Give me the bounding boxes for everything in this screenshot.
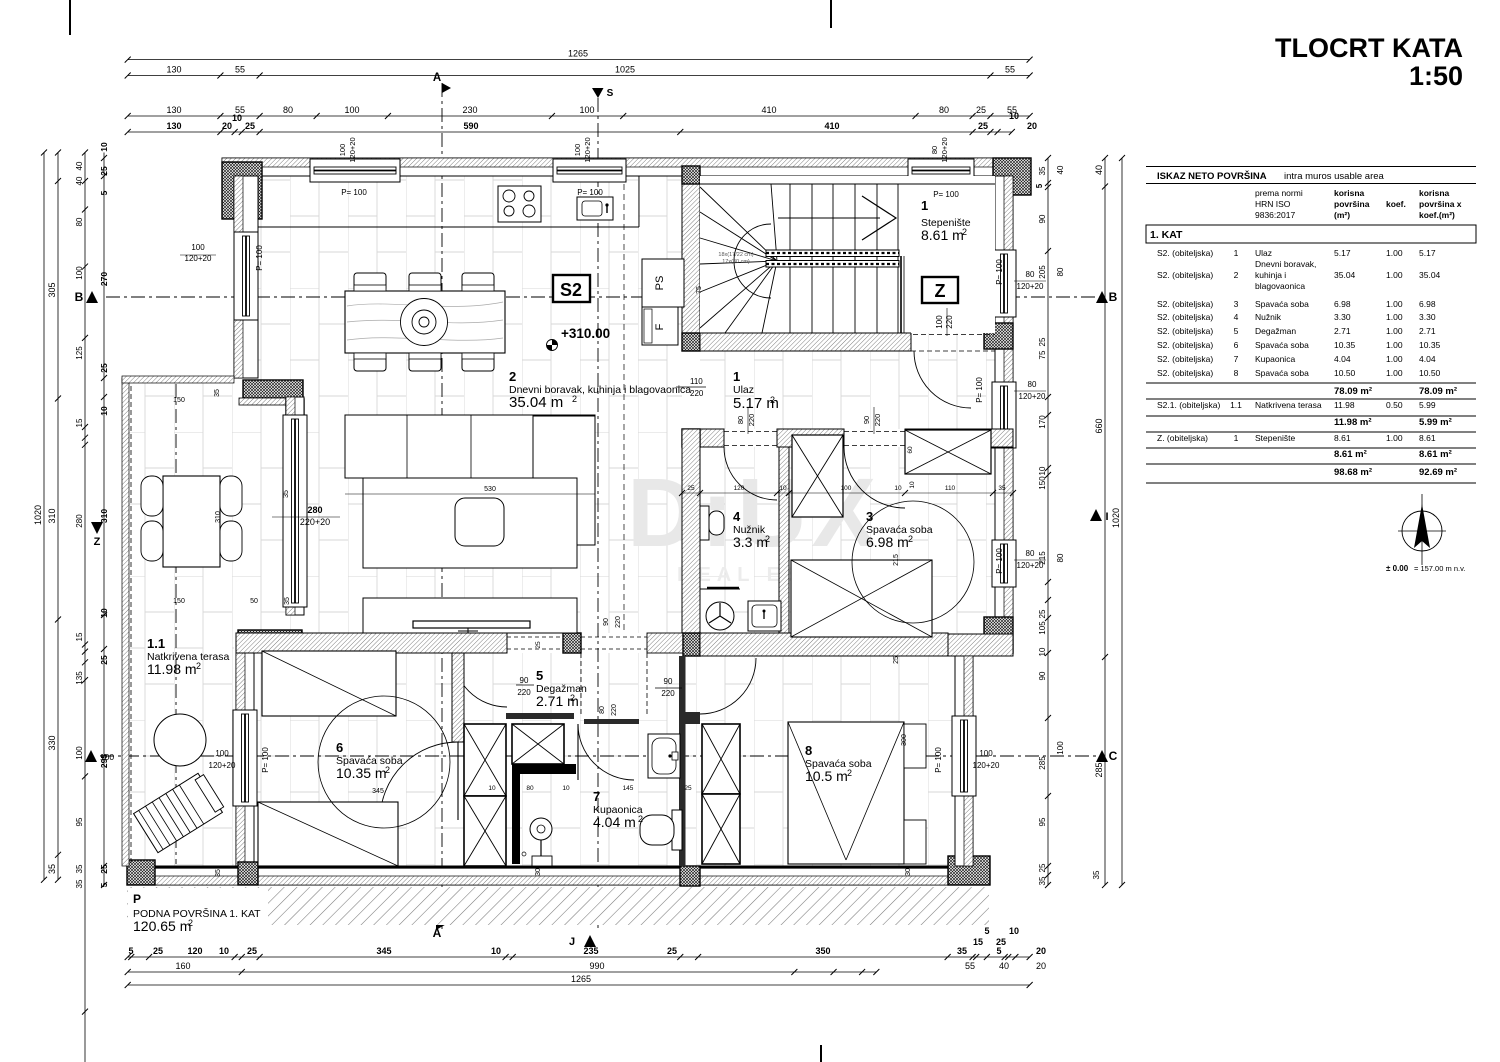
svg-text:15: 15: [75, 632, 84, 641]
svg-text:25: 25: [1038, 863, 1047, 872]
svg-text:35: 35: [214, 389, 221, 397]
svg-text:Spavaća soba: Spavaća soba: [1255, 368, 1309, 378]
svg-text:80: 80: [526, 785, 534, 792]
svg-text:410: 410: [824, 121, 839, 131]
svg-text:10.50: 10.50: [1334, 368, 1356, 378]
svg-text:1: 1: [733, 369, 740, 384]
svg-text:10: 10: [562, 785, 570, 792]
svg-text:135: 135: [75, 671, 84, 685]
svg-text:220: 220: [615, 616, 622, 628]
svg-text:100: 100: [979, 749, 993, 758]
svg-text:P= 100: P= 100: [975, 377, 984, 403]
svg-text:1.00: 1.00: [1386, 340, 1403, 350]
svg-text:25: 25: [99, 166, 109, 176]
svg-text:95: 95: [1038, 817, 1047, 826]
svg-text:130: 130: [166, 105, 181, 115]
svg-text:1: 1: [921, 198, 928, 213]
svg-text:230: 230: [462, 105, 477, 115]
svg-text:100: 100: [579, 105, 594, 115]
svg-text:7: 7: [593, 789, 600, 804]
svg-text:285: 285: [1094, 762, 1104, 777]
svg-text:78.09 m²: 78.09 m²: [1334, 386, 1372, 397]
svg-text:120+20: 120+20: [940, 137, 949, 162]
svg-text:1.00: 1.00: [1386, 368, 1403, 378]
svg-text:10: 10: [219, 946, 229, 956]
svg-text:80: 80: [1056, 267, 1065, 276]
svg-text:90: 90: [1038, 671, 1047, 680]
svg-text:35: 35: [998, 485, 1006, 492]
svg-text:125: 125: [75, 346, 84, 360]
svg-text:P= 100: P= 100: [261, 747, 270, 773]
svg-text:25: 25: [667, 946, 677, 956]
svg-text:5: 5: [128, 946, 133, 956]
svg-text:100: 100: [75, 266, 84, 280]
svg-text:110: 110: [945, 485, 956, 492]
svg-text:C: C: [1109, 749, 1118, 763]
svg-text:PS: PS: [654, 276, 666, 291]
svg-text:345: 345: [372, 788, 384, 795]
svg-text:10.35: 10.35: [1419, 340, 1441, 350]
svg-text:1.1: 1.1: [147, 636, 165, 651]
svg-text:površina x: površina x: [1419, 199, 1462, 209]
svg-text:25: 25: [1038, 337, 1047, 346]
svg-text:35: 35: [284, 597, 291, 605]
svg-text:4.04 m: 4.04 m: [593, 814, 636, 830]
svg-text:25: 25: [535, 641, 542, 649]
svg-text:80: 80: [283, 105, 293, 115]
svg-text:80: 80: [1026, 549, 1035, 558]
svg-text:8.61: 8.61: [1334, 433, 1351, 443]
svg-text:590: 590: [463, 121, 478, 131]
svg-text:220: 220: [517, 688, 531, 697]
svg-text:2: 2: [908, 534, 913, 544]
svg-text:2: 2: [638, 814, 643, 824]
svg-text:350: 350: [815, 946, 830, 956]
svg-text:P: P: [133, 892, 141, 906]
svg-text:Spavaća soba: Spavaća soba: [1255, 340, 1309, 350]
svg-text:120+20: 120+20: [583, 137, 592, 162]
svg-text:10: 10: [1038, 647, 1047, 656]
svg-text:30: 30: [905, 868, 912, 876]
svg-text:40: 40: [999, 961, 1009, 971]
svg-text:80: 80: [1028, 380, 1037, 389]
svg-text:1. KAT: 1. KAT: [1150, 229, 1183, 241]
svg-text:10: 10: [99, 406, 109, 416]
svg-text:280: 280: [307, 505, 322, 515]
svg-text:40: 40: [1094, 165, 1104, 175]
svg-text:98.68 m²: 98.68 m²: [1334, 467, 1372, 478]
svg-text:100: 100: [1056, 741, 1065, 755]
svg-text:4.04: 4.04: [1334, 354, 1351, 364]
svg-text:11.98 m: 11.98 m: [147, 661, 197, 677]
svg-text:2: 2: [572, 394, 577, 404]
svg-text:660: 660: [1094, 418, 1104, 433]
svg-text:120: 120: [187, 946, 202, 956]
svg-text:220: 220: [661, 689, 675, 698]
svg-text:F: F: [654, 323, 666, 330]
svg-text:10: 10: [1038, 466, 1047, 475]
svg-text:100: 100: [75, 746, 84, 760]
svg-text:80: 80: [930, 146, 939, 154]
svg-text:120: 120: [734, 485, 745, 492]
svg-text:8: 8: [805, 743, 812, 758]
svg-text:285: 285: [1038, 756, 1047, 770]
svg-text:1.00: 1.00: [1386, 312, 1403, 322]
svg-text:A: A: [433, 926, 442, 940]
svg-text:kuhinja i: kuhinja i: [1255, 270, 1286, 280]
svg-text:25: 25: [996, 937, 1006, 947]
svg-text:3.30: 3.30: [1419, 312, 1436, 322]
svg-text:120.65 m: 120.65 m: [133, 918, 191, 934]
svg-text:10: 10: [232, 113, 242, 123]
svg-text:105: 105: [1038, 621, 1047, 635]
svg-text:S2.1. (obiteljska): S2.1. (obiteljska): [1157, 400, 1220, 410]
svg-text:2.71: 2.71: [1419, 326, 1436, 336]
svg-text:P= 100: P= 100: [995, 259, 1004, 285]
svg-text:P= 100: P= 100: [341, 188, 367, 197]
svg-text:10: 10: [1009, 111, 1019, 121]
svg-text:P= 100: P= 100: [255, 245, 264, 271]
svg-text:345: 345: [376, 946, 391, 956]
svg-text:3: 3: [866, 509, 873, 524]
svg-text:S2. (obiteljska): S2. (obiteljska): [1157, 299, 1213, 309]
svg-text:170: 170: [1038, 415, 1047, 429]
svg-text:295: 295: [99, 754, 109, 768]
svg-text:270: 270: [99, 272, 109, 286]
svg-text:25: 25: [978, 121, 988, 131]
svg-text:S2. (obiteljska): S2. (obiteljska): [1157, 354, 1213, 364]
svg-text:HRN ISO: HRN ISO: [1255, 199, 1291, 209]
svg-text:10: 10: [491, 946, 501, 956]
svg-text:120+20: 120+20: [209, 761, 236, 770]
svg-text:2: 2: [770, 395, 775, 405]
svg-text:(m²): (m²): [1334, 210, 1350, 220]
svg-text:150: 150: [173, 598, 185, 605]
svg-text:J: J: [569, 936, 575, 948]
svg-text:S2. (obiteljska): S2. (obiteljska): [1157, 248, 1213, 258]
svg-text:Z: Z: [94, 536, 101, 548]
svg-text:90: 90: [664, 677, 673, 686]
svg-text:78.09 m²: 78.09 m²: [1419, 386, 1457, 397]
svg-text:100: 100: [191, 243, 205, 252]
svg-text:Stepenište: Stepenište: [1255, 433, 1295, 443]
svg-text:B: B: [1109, 290, 1118, 304]
svg-text:120+20: 120+20: [1019, 392, 1046, 401]
svg-text:10: 10: [779, 485, 787, 492]
svg-text:90: 90: [603, 618, 610, 626]
svg-text:I: I: [1105, 511, 1108, 523]
svg-text:2: 2: [847, 768, 852, 778]
svg-text:35: 35: [957, 946, 967, 956]
svg-text:10: 10: [909, 481, 916, 489]
svg-text:Dnevni boravak,: Dnevni boravak,: [1255, 259, 1316, 269]
svg-text:1020: 1020: [33, 505, 43, 525]
svg-text:40: 40: [75, 161, 84, 170]
svg-text:55: 55: [1005, 65, 1015, 75]
svg-text:145: 145: [623, 785, 634, 792]
svg-text:25: 25: [245, 121, 255, 131]
svg-text:10: 10: [894, 485, 902, 492]
svg-text:25: 25: [684, 785, 692, 792]
svg-text:1: 1: [1234, 433, 1239, 443]
svg-text:35: 35: [215, 869, 222, 877]
svg-text:1025: 1025: [615, 65, 635, 75]
svg-text:100: 100: [338, 144, 347, 157]
svg-text:35.04: 35.04: [1334, 270, 1356, 280]
svg-text:1.00: 1.00: [1386, 248, 1403, 258]
svg-text:2: 2: [570, 693, 575, 703]
svg-text:= 157.00 m n.v.: = 157.00 m n.v.: [1414, 564, 1465, 573]
svg-text:Degažman: Degažman: [1255, 326, 1296, 336]
svg-text:5.99 m²: 5.99 m²: [1419, 417, 1452, 428]
svg-text:1: 1: [1234, 248, 1239, 258]
svg-text:130: 130: [166, 65, 181, 75]
svg-text:10: 10: [99, 608, 109, 618]
svg-text:2: 2: [1234, 270, 1239, 280]
svg-text:80: 80: [1026, 270, 1035, 279]
svg-text:P= 100: P= 100: [577, 188, 603, 197]
svg-text:8.61 m²: 8.61 m²: [1419, 449, 1452, 460]
svg-text:blagovaonica: blagovaonica: [1255, 281, 1305, 291]
svg-text:60: 60: [907, 446, 914, 454]
svg-text:25: 25: [687, 485, 695, 492]
svg-text:8: 8: [1234, 368, 1239, 378]
svg-text:1020: 1020: [1111, 508, 1121, 528]
svg-text:5: 5: [1234, 326, 1239, 336]
svg-text:11.98 m²: 11.98 m²: [1334, 417, 1372, 428]
svg-text:305: 305: [47, 282, 57, 297]
svg-text:P= 100: P= 100: [934, 747, 943, 773]
svg-text:160: 160: [175, 961, 190, 971]
svg-text:120+20: 120+20: [973, 761, 1000, 770]
svg-text:40: 40: [75, 176, 84, 185]
svg-text:Ulaz: Ulaz: [1255, 248, 1272, 258]
svg-text:korisna: korisna: [1334, 188, 1365, 198]
svg-text:100: 100: [215, 749, 229, 758]
svg-text:92.69 m²: 92.69 m²: [1419, 467, 1457, 478]
svg-text:530: 530: [484, 486, 496, 493]
svg-text:150: 150: [173, 397, 185, 404]
svg-text:35: 35: [75, 864, 84, 873]
svg-text:1.00: 1.00: [1386, 299, 1403, 309]
svg-text:S2: S2: [560, 280, 582, 300]
svg-text:310: 310: [99, 509, 109, 523]
svg-text:koef.: koef.: [1386, 199, 1406, 209]
svg-text:280: 280: [75, 514, 84, 528]
svg-text:3.3 m: 3.3 m: [733, 534, 768, 550]
svg-text:7: 7: [1234, 354, 1239, 364]
svg-text:300: 300: [901, 734, 908, 746]
svg-text:100: 100: [841, 485, 852, 492]
svg-text:11.98: 11.98: [1334, 400, 1355, 410]
svg-text:5: 5: [996, 946, 1001, 956]
svg-text:25: 25: [99, 655, 109, 665]
svg-text:90: 90: [1038, 214, 1047, 223]
svg-text:2: 2: [509, 369, 516, 384]
svg-text:Z: Z: [935, 281, 946, 301]
svg-text:prema normi: prema normi: [1255, 188, 1303, 198]
svg-text:20: 20: [1036, 946, 1046, 956]
svg-text:S2. (obiteljska): S2. (obiteljska): [1157, 368, 1213, 378]
svg-text:100: 100: [344, 105, 359, 115]
svg-text:korisna: korisna: [1419, 188, 1450, 198]
svg-text:5.99: 5.99: [1419, 400, 1436, 410]
svg-text:5.17: 5.17: [1334, 248, 1351, 258]
svg-text:5: 5: [984, 926, 989, 936]
svg-text:40: 40: [1056, 165, 1065, 174]
svg-text:S: S: [607, 88, 614, 99]
svg-text:310: 310: [215, 511, 222, 523]
svg-text:90: 90: [862, 416, 871, 424]
svg-text:6: 6: [336, 740, 343, 755]
svg-text:35: 35: [1038, 876, 1047, 885]
svg-text:120+20: 120+20: [185, 254, 212, 263]
svg-text:90: 90: [520, 676, 529, 685]
svg-text:Kupaonica: Kupaonica: [1255, 354, 1295, 364]
svg-text:10: 10: [99, 142, 109, 152]
svg-text:3: 3: [1234, 299, 1239, 309]
svg-text:25: 25: [247, 946, 257, 956]
svg-text:9836:2017: 9836:2017: [1255, 210, 1295, 220]
svg-text:2.71: 2.71: [1334, 326, 1351, 336]
svg-text:410: 410: [761, 105, 776, 115]
svg-text:3.30: 3.30: [1334, 312, 1351, 322]
svg-text:10.35: 10.35: [1334, 340, 1356, 350]
svg-text:35: 35: [1092, 870, 1101, 879]
svg-text:17x(30 cm): 17x(30 cm): [722, 259, 750, 265]
svg-text:990: 990: [589, 961, 604, 971]
svg-text:Nužnik: Nužnik: [1255, 312, 1282, 322]
svg-text:5.17: 5.17: [1419, 248, 1436, 258]
svg-text:120+20: 120+20: [348, 137, 357, 162]
svg-text:330: 330: [47, 735, 57, 750]
svg-text:5: 5: [1035, 183, 1044, 188]
svg-text:80: 80: [1056, 553, 1065, 562]
svg-text:220: 220: [690, 389, 704, 398]
svg-text:220: 220: [873, 414, 882, 427]
svg-text:1.00: 1.00: [1386, 326, 1403, 336]
svg-text:8.61 m: 8.61 m: [921, 227, 964, 243]
svg-text:10: 10: [488, 785, 496, 792]
svg-text:S2. (obiteljska): S2. (obiteljska): [1157, 270, 1213, 280]
svg-text:2: 2: [962, 227, 967, 237]
svg-text:25: 25: [153, 946, 163, 956]
svg-text:220: 220: [945, 315, 954, 329]
svg-text:35.04 m: 35.04 m: [509, 394, 563, 411]
svg-text:110: 110: [690, 377, 703, 386]
svg-text:S2. (obiteljska): S2. (obiteljska): [1157, 326, 1213, 336]
svg-text:35: 35: [1038, 166, 1047, 175]
svg-text:2: 2: [188, 918, 193, 928]
svg-text:4.04: 4.04: [1419, 354, 1436, 364]
svg-text:50: 50: [250, 598, 258, 605]
svg-text:215: 215: [1038, 551, 1047, 565]
svg-text:35: 35: [75, 879, 84, 888]
svg-text:2: 2: [765, 534, 770, 544]
svg-text:8.61: 8.61: [1419, 433, 1436, 443]
svg-text:ISKAZ NETO POVRŠINA: ISKAZ NETO POVRŠINA: [1157, 170, 1267, 182]
svg-text:80: 80: [939, 105, 949, 115]
svg-text:18x(17/22 cm): 18x(17/22 cm): [718, 252, 753, 258]
svg-text:S2. (obiteljska): S2. (obiteljska): [1157, 340, 1213, 350]
svg-text:6: 6: [1234, 340, 1239, 350]
svg-text:25: 25: [893, 656, 900, 664]
svg-text:10: 10: [1009, 926, 1019, 936]
svg-text:35: 35: [47, 864, 57, 874]
svg-text:15: 15: [75, 418, 84, 427]
svg-text:2: 2: [385, 765, 390, 775]
svg-text:10.5 m: 10.5 m: [805, 768, 848, 784]
svg-text:30: 30: [535, 868, 542, 876]
svg-text:6.98 m: 6.98 m: [866, 534, 909, 550]
svg-text:55: 55: [235, 65, 245, 75]
svg-text:10.50: 10.50: [1419, 368, 1441, 378]
svg-text:1:50: 1:50: [1409, 61, 1463, 91]
svg-text:220: 220: [611, 704, 618, 716]
svg-text:220+20: 220+20: [300, 517, 330, 527]
svg-text:± 0.00: ± 0.00: [1386, 564, 1409, 573]
svg-text:1.00: 1.00: [1386, 433, 1403, 443]
svg-text:95: 95: [75, 817, 84, 826]
svg-text:intra muros usable area: intra muros usable area: [1284, 171, 1385, 182]
svg-text:75: 75: [696, 286, 703, 294]
svg-text:150: 150: [1038, 476, 1047, 490]
svg-text:20: 20: [1036, 961, 1046, 971]
svg-text:220: 220: [747, 414, 756, 427]
svg-text:P= 100: P= 100: [933, 190, 959, 199]
svg-text:55: 55: [965, 961, 975, 971]
svg-text:25: 25: [99, 363, 109, 373]
svg-text:6.98: 6.98: [1334, 299, 1351, 309]
svg-text:koef.(m²): koef.(m²): [1419, 210, 1455, 220]
svg-text:4: 4: [733, 509, 741, 524]
svg-text:100: 100: [573, 144, 582, 157]
svg-text:215: 215: [893, 554, 900, 566]
svg-text:Natkrivena terasa: Natkrivena terasa: [1255, 400, 1322, 410]
svg-text:Spavaća soba: Spavaća soba: [1255, 299, 1309, 309]
svg-text:1.00: 1.00: [1386, 354, 1403, 364]
svg-text:25: 25: [976, 105, 986, 115]
svg-text:120+20: 120+20: [1017, 282, 1044, 291]
svg-text:4: 4: [1234, 312, 1239, 322]
svg-text:100: 100: [935, 315, 944, 329]
svg-text:80: 80: [736, 416, 745, 424]
svg-text:20: 20: [1027, 121, 1037, 131]
svg-text:+310.00: +310.00: [561, 326, 610, 341]
svg-text:1.00: 1.00: [1386, 270, 1403, 280]
svg-text:8.61 m²: 8.61 m²: [1334, 449, 1367, 460]
svg-text:B: B: [75, 290, 84, 304]
svg-text:2: 2: [196, 661, 201, 671]
svg-text:Z. (obiteljska): Z. (obiteljska): [1157, 433, 1208, 443]
svg-text:75: 75: [1038, 350, 1047, 359]
svg-text:25: 25: [1038, 609, 1047, 618]
svg-text:TLOCRT KATA: TLOCRT KATA: [1275, 33, 1463, 63]
svg-text:6.98: 6.98: [1419, 299, 1436, 309]
svg-text:0.50: 0.50: [1386, 400, 1403, 410]
svg-text:35.04: 35.04: [1419, 270, 1441, 280]
svg-text:S2. (obiteljska): S2. (obiteljska): [1157, 312, 1213, 322]
svg-text:A: A: [433, 72, 441, 84]
svg-text:10.35 m: 10.35 m: [336, 765, 387, 781]
svg-text:1.1: 1.1: [1230, 400, 1242, 410]
svg-text:80: 80: [599, 706, 606, 714]
svg-text:130: 130: [166, 121, 181, 131]
svg-text:80: 80: [75, 217, 84, 226]
svg-text:1265: 1265: [568, 49, 588, 59]
svg-text:P= 100: P= 100: [995, 548, 1004, 574]
svg-text:235: 235: [583, 946, 598, 956]
